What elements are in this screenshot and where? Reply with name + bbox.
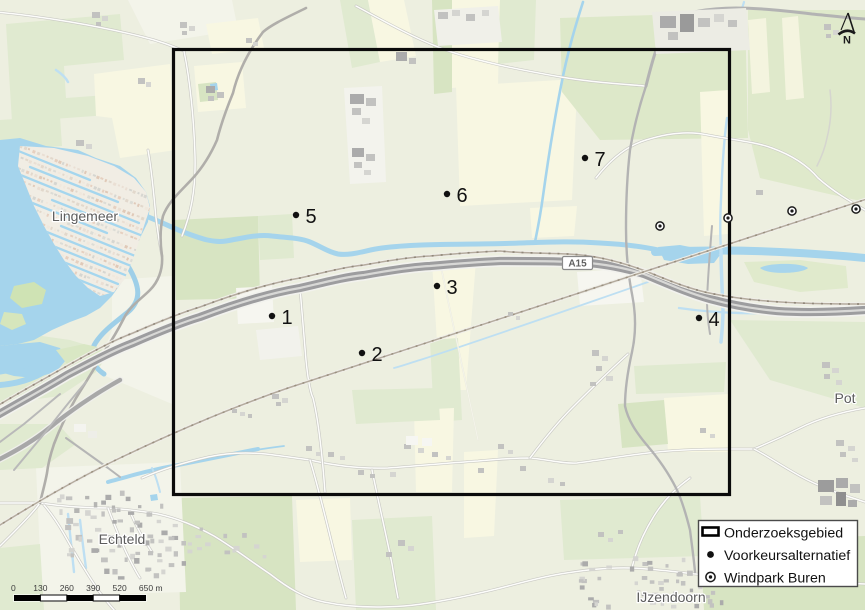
svg-text:650: 650: [139, 583, 153, 593]
svg-text:Windpark Buren: Windpark Buren: [724, 571, 826, 587]
svg-text:0: 0: [11, 583, 16, 593]
svg-text:7: 7: [595, 149, 606, 171]
svg-text:IJzendoorn: IJzendoorn: [636, 589, 705, 605]
svg-text:N: N: [843, 35, 851, 47]
svg-text:2: 2: [372, 344, 383, 366]
svg-text:3: 3: [447, 277, 458, 299]
svg-text:520: 520: [113, 583, 127, 593]
svg-text:Voorkeursalternatief: Voorkeursalternatief: [724, 548, 850, 564]
svg-text:Onderzoeksgebied: Onderzoeksgebied: [724, 526, 843, 542]
svg-text:5: 5: [306, 206, 317, 228]
svg-text:Echteld: Echteld: [99, 531, 146, 547]
svg-text:m: m: [155, 583, 162, 593]
svg-text:6: 6: [457, 185, 468, 207]
svg-text:1: 1: [282, 307, 293, 329]
svg-text:A15: A15: [568, 259, 587, 270]
svg-text:4: 4: [709, 309, 720, 331]
svg-text:390: 390: [86, 583, 100, 593]
svg-text:Pot: Pot: [834, 390, 855, 406]
svg-text:260: 260: [60, 583, 74, 593]
svg-text:130: 130: [33, 583, 47, 593]
svg-text:Lingemeer: Lingemeer: [52, 208, 118, 224]
